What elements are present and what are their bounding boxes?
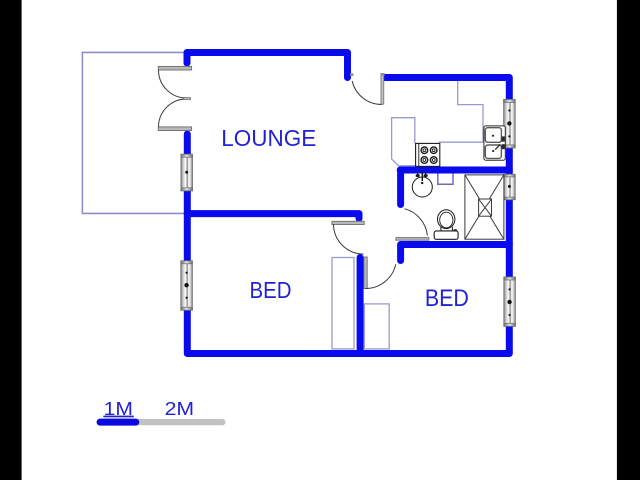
svg-text:LOUNGE: LOUNGE (221, 125, 316, 151)
svg-text:BED: BED (425, 285, 469, 312)
svg-text:2M: 2M (165, 398, 195, 419)
svg-text:BED: BED (250, 277, 292, 303)
